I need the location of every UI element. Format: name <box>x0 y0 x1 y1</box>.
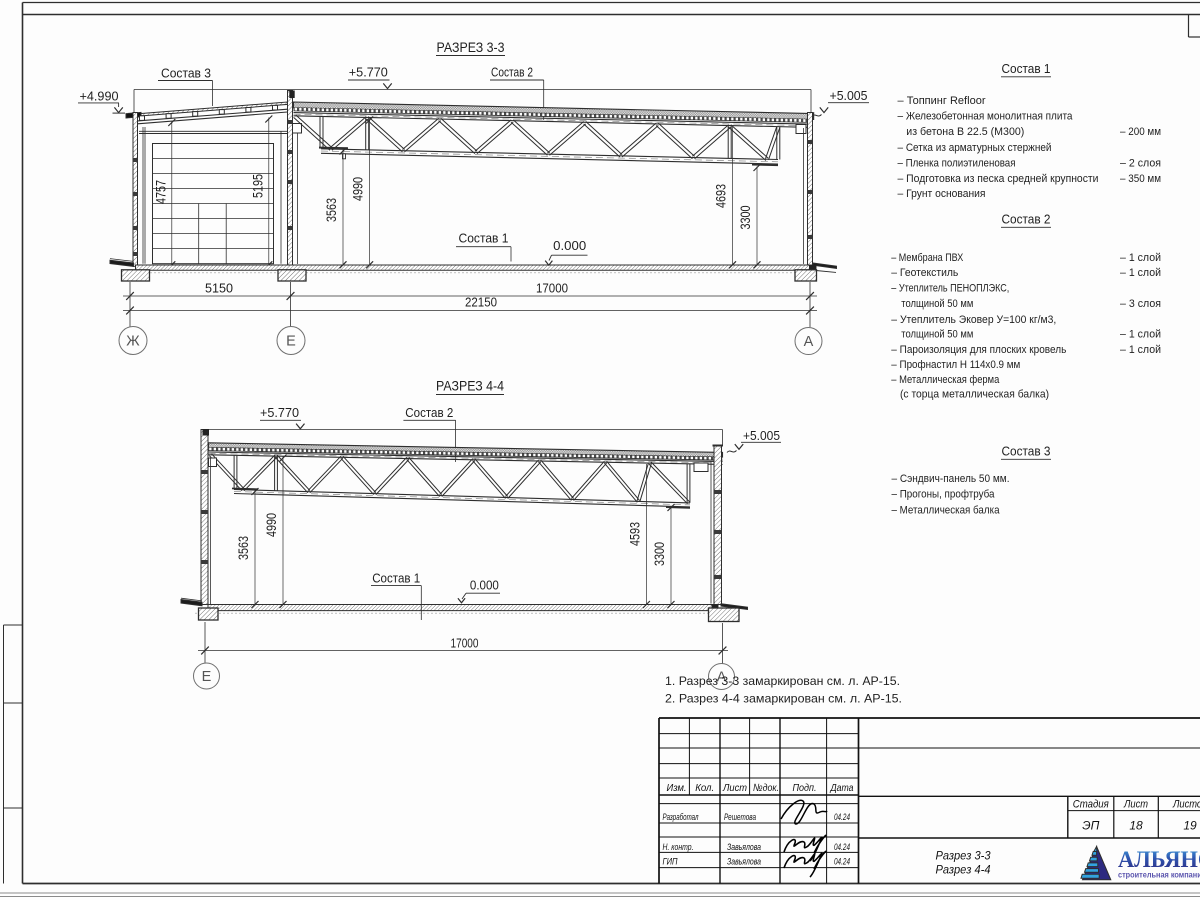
svg-text:РАЗРЕЗ 3-3: РАЗРЕЗ 3-3 <box>437 39 505 55</box>
svg-text:– 3 слоя: – 3 слоя <box>1120 298 1161 310</box>
svg-text:– Сэндвич-панель 50 мм.: – Сэндвич-панель 50 мм. <box>892 473 1010 485</box>
svg-text:+5.005: +5.005 <box>830 88 868 103</box>
svg-text:Е: Е <box>202 669 212 685</box>
svg-text:– Железобетонная монолитная п: – Железобетонная монолитная плита <box>898 111 1074 123</box>
svg-text:04.24: 04.24 <box>834 812 850 823</box>
svg-text:+4.990: +4.990 <box>80 89 119 104</box>
svg-text:Ж: Ж <box>126 334 140 350</box>
svg-text:Состав 2: Состав 2 <box>405 406 453 420</box>
svg-text:– Геотекстиль: – Геотекстиль <box>891 267 958 279</box>
svg-text:Е: Е <box>286 334 296 350</box>
svg-text:17000: 17000 <box>451 636 479 650</box>
svg-text:Дата: Дата <box>830 782 854 794</box>
svg-text:– Металлическая ферма: – Металлическая ферма <box>891 374 1000 386</box>
svg-text:– Топпинг Refloor: – Топпинг Refloor <box>898 95 986 107</box>
svg-text:Стадия: Стадия <box>1073 799 1109 811</box>
svg-text:А: А <box>804 334 814 350</box>
svg-text:– 200 мм: – 200 мм <box>1120 126 1161 138</box>
svg-text:– Подготовка из песка средней: – Подготовка из песка средней крупности <box>898 173 1099 185</box>
svg-text:17000: 17000 <box>536 282 568 296</box>
svg-text:– Профнастил Н 114х0.9 мм: – Профнастил Н 114х0.9 мм <box>891 359 1020 371</box>
svg-text:+5.770: +5.770 <box>260 405 299 420</box>
svg-text:– Сетка из арматурных стержней: – Сетка из арматурных стержней <box>898 142 1052 154</box>
svg-text:5150: 5150 <box>205 282 233 296</box>
svg-text:АЛЬЯНС: АЛЬЯНС <box>1118 847 1200 872</box>
svg-text:0.000: 0.000 <box>553 238 586 253</box>
svg-text:Кол.: Кол. <box>695 782 714 794</box>
svg-text:4990: 4990 <box>264 513 279 537</box>
svg-text:4693: 4693 <box>714 184 729 208</box>
svg-text:4757: 4757 <box>153 180 168 204</box>
svg-text:Состав 2: Состав 2 <box>1002 213 1051 227</box>
svg-text:Лист: Лист <box>1123 799 1148 811</box>
svg-text:Состав 2: Состав 2 <box>491 65 533 79</box>
svg-text:3300: 3300 <box>738 206 753 230</box>
svg-text:1. Разрез 3-3 замаркирован см.: 1. Разрез 3-3 замаркирован см. л. АР-15. <box>665 674 900 688</box>
svg-text:толщиной 50 мм: толщиной 50 мм <box>901 298 973 310</box>
svg-text:ГИП: ГИП <box>663 857 678 868</box>
svg-text:4593: 4593 <box>627 522 642 546</box>
svg-text:– 1 слой: – 1 слой <box>1120 267 1161 279</box>
svg-text:+5.005: +5.005 <box>743 428 780 443</box>
svg-text:№док.: №док. <box>753 782 779 794</box>
svg-text:– Грунт основания: – Грунт основания <box>898 188 986 200</box>
svg-text:строительная компания: строительная компания <box>1118 871 1200 880</box>
svg-text:18: 18 <box>1129 819 1143 833</box>
svg-text:Решетова: Решетова <box>724 812 756 823</box>
svg-text:22150: 22150 <box>465 295 497 309</box>
svg-text:– Пароизоляция для плоских кро: – Пароизоляция для плоских кровель <box>891 344 1066 356</box>
svg-text:Состав 1: Состав 1 <box>459 231 509 245</box>
svg-text:– 1 слой: – 1 слой <box>1120 329 1161 341</box>
svg-text:(с торца металлическая балка): (с торца металлическая балка) <box>900 389 1049 401</box>
svg-text:Разработал: Разработал <box>663 812 699 823</box>
svg-text:+5.770: +5.770 <box>349 64 388 79</box>
svg-text:– Мембрана ПВХ: – Мембрана ПВХ <box>891 252 964 264</box>
svg-text:3563: 3563 <box>324 198 339 222</box>
svg-text:Состав 3: Состав 3 <box>1002 445 1051 459</box>
svg-text:Н. контр.: Н. контр. <box>663 842 694 853</box>
svg-text:Завьялова: Завьялова <box>727 842 761 853</box>
svg-text:из бетона В 22.5 (М300): из бетона В 22.5 (М300) <box>906 126 1024 138</box>
svg-text:5195: 5195 <box>250 174 265 198</box>
svg-text:Лист: Лист <box>722 782 747 794</box>
svg-text:– 350 мм: – 350 мм <box>1120 173 1161 185</box>
svg-text:0.000: 0.000 <box>470 578 499 593</box>
svg-text:3563: 3563 <box>236 536 251 560</box>
svg-text:ЭП: ЭП <box>1082 819 1099 833</box>
svg-text:Состав 1: Состав 1 <box>372 571 420 585</box>
svg-text:– Прогоны, профтруба: – Прогоны, профтруба <box>892 489 996 501</box>
svg-text:– 1 слой: – 1 слой <box>1120 344 1161 356</box>
svg-text:РАЗРЕЗ 4-4: РАЗРЕЗ 4-4 <box>436 378 504 394</box>
svg-text:4990: 4990 <box>351 177 366 201</box>
svg-text:19: 19 <box>1183 819 1197 833</box>
svg-text:Состав 1: Состав 1 <box>1002 62 1051 76</box>
svg-text:Разрез 3-3: Разрез 3-3 <box>936 851 992 863</box>
svg-text:– Металлическая балка: – Металлическая балка <box>892 504 1001 516</box>
svg-text:– 2 слоя: – 2 слоя <box>1120 157 1161 169</box>
svg-text:толщиной 50 мм: толщиной 50 мм <box>901 329 973 341</box>
svg-text:Разрез 4-4: Разрез 4-4 <box>936 865 991 877</box>
svg-text:– Утеплитель ПЕНОПЛЭКС,: – Утеплитель ПЕНОПЛЭКС, <box>891 283 1009 295</box>
svg-text:04.24: 04.24 <box>834 857 850 868</box>
svg-text:04.24: 04.24 <box>834 842 850 853</box>
svg-text:Подп.: Подп. <box>793 782 817 794</box>
svg-text:– Пленка полиэтиленовая: – Пленка полиэтиленовая <box>898 157 1016 169</box>
svg-text:3300: 3300 <box>652 542 667 566</box>
svg-text:Листов: Листов <box>1172 799 1200 811</box>
svg-text:Изм.: Изм. <box>667 782 687 794</box>
svg-text:– 1 слой: – 1 слой <box>1120 252 1161 264</box>
svg-text:Состав 3: Состав 3 <box>161 65 211 80</box>
svg-text:– Утеплитель Эковер У=100 кг/м: – Утеплитель Эковер У=100 кг/м3, <box>891 314 1056 326</box>
svg-text:Завьялова: Завьялова <box>727 857 761 868</box>
svg-text:2. Разрез 4-4 замаркирован см.: 2. Разрез 4-4 замаркирован см. л. АР-15. <box>665 692 902 706</box>
